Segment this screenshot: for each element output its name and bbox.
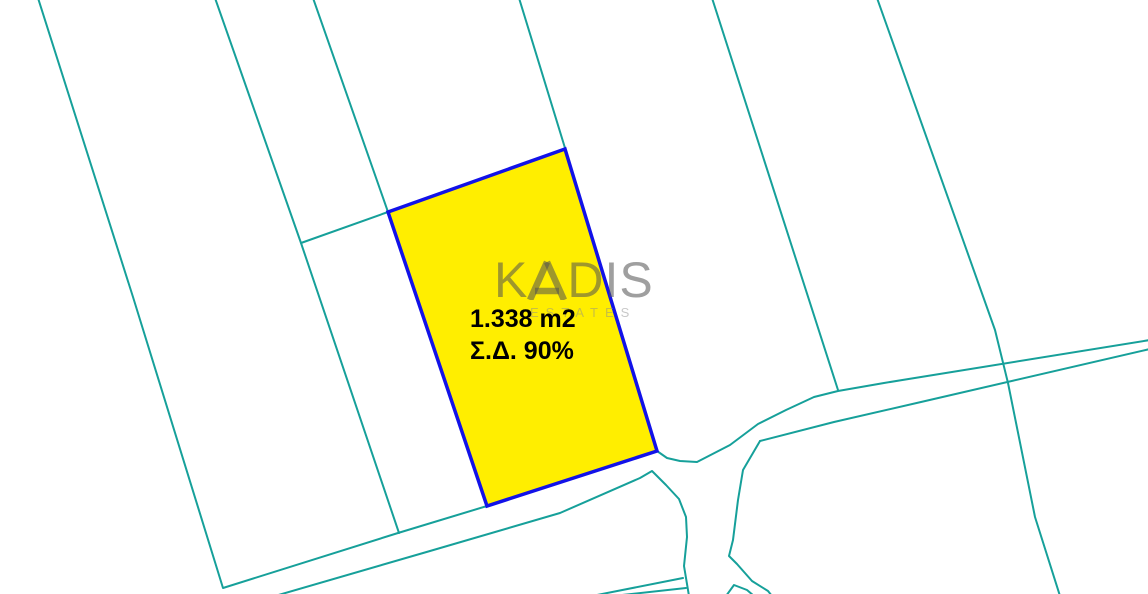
boundary-line-east [877, 0, 1060, 594]
boundary-branch-to-parcel [301, 212, 388, 243]
cadastral-map [0, 0, 1148, 594]
parcel-label: 1.338 m2 Σ.Δ. 90% [470, 303, 576, 367]
cadastral-map-screenshot: K DIS ESTATES 1.338 m2 Σ.Δ. 90% [0, 0, 1148, 594]
side-road-east-edge [729, 441, 772, 594]
bottom-parcel-corner [726, 585, 754, 594]
bottom-lane-edge-1 [592, 578, 683, 594]
parcel-density-label: Σ.Δ. 90% [470, 335, 576, 367]
parcel-area-label: 1.338 m2 [470, 303, 576, 335]
boundary-line-mid [215, 0, 399, 533]
road-north-edge [657, 340, 1148, 462]
boundary-line-top-right [712, 0, 838, 390]
boundary-line-upper-mid [313, 0, 388, 212]
boundary-line-top-center [519, 0, 565, 148]
